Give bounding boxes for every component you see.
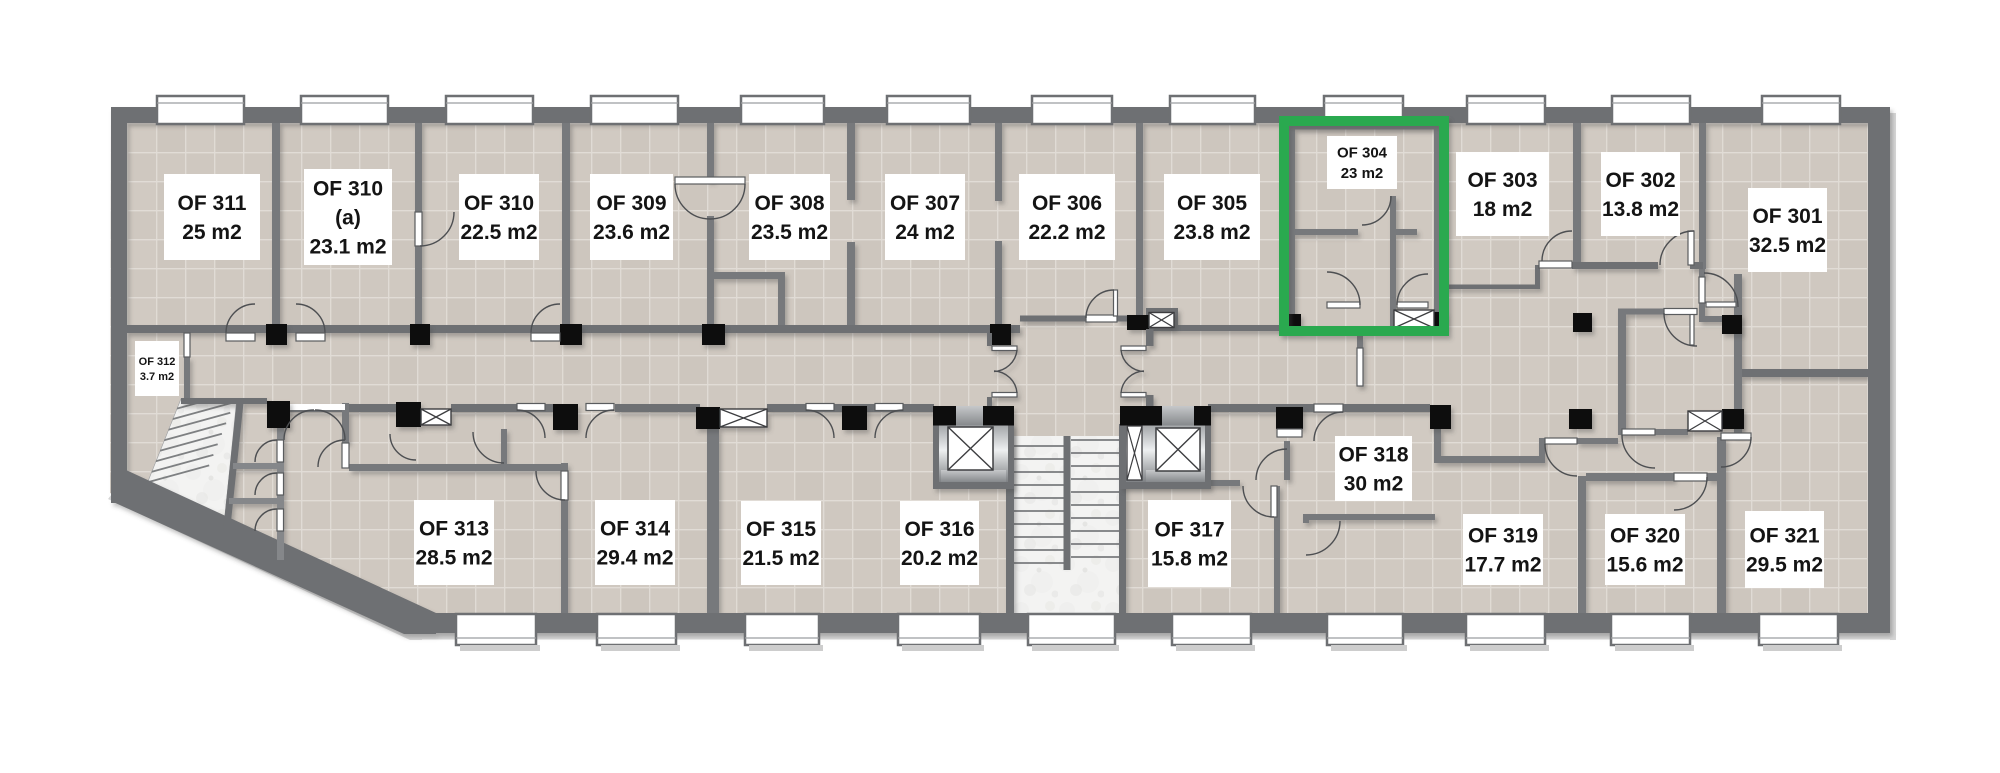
svg-text:22.2 m2: 22.2 m2 [1028,221,1105,244]
svg-text:OF 303: OF 303 [1467,169,1537,192]
svg-text:18 m2: 18 m2 [1473,198,1533,221]
svg-text:21.5 m2: 21.5 m2 [742,547,819,570]
svg-text:OF 314: OF 314 [600,517,670,540]
svg-text:OF 305: OF 305 [1177,192,1247,215]
svg-text:23.8 m2: 23.8 m2 [1173,221,1250,244]
svg-text:3.7 m2: 3.7 m2 [140,371,174,383]
svg-text:OF 302: OF 302 [1605,169,1675,192]
svg-text:OF 308: OF 308 [754,192,824,215]
svg-text:OF 310: OF 310 [464,192,534,215]
svg-text:OF 306: OF 306 [1032,192,1102,215]
svg-text:23.1 m2: 23.1 m2 [309,235,386,258]
svg-text:OF 318: OF 318 [1338,443,1408,466]
svg-text:OF 307: OF 307 [890,192,960,215]
svg-text:OF 310: OF 310 [313,177,383,200]
svg-text:29.5 m2: 29.5 m2 [1746,553,1823,576]
svg-text:22.5 m2: 22.5 m2 [460,221,537,244]
svg-text:OF 312: OF 312 [139,356,176,368]
svg-text:15.6 m2: 15.6 m2 [1606,553,1683,576]
svg-text:15.8 m2: 15.8 m2 [1151,547,1228,570]
svg-text:23 m2: 23 m2 [1341,165,1384,182]
svg-text:OF 315: OF 315 [746,518,816,541]
svg-text:OF 320: OF 320 [1610,524,1680,547]
svg-text:OF 321: OF 321 [1749,524,1819,547]
svg-text:23.5 m2: 23.5 m2 [751,221,828,244]
svg-text:13.8 m2: 13.8 m2 [1602,198,1679,221]
svg-text:17.7 m2: 17.7 m2 [1464,553,1541,576]
svg-text:30 m2: 30 m2 [1344,472,1404,495]
svg-text:OF 317: OF 317 [1154,518,1224,541]
svg-text:29.4 m2: 29.4 m2 [596,546,673,569]
svg-text:OF 311: OF 311 [178,192,247,215]
svg-text:23.6 m2: 23.6 m2 [593,221,670,244]
svg-text:OF 316: OF 316 [904,518,974,541]
svg-text:OF 313: OF 313 [419,517,489,540]
svg-text:25 m2: 25 m2 [182,221,242,244]
svg-text:OF 301: OF 301 [1752,205,1822,228]
svg-text:24 m2: 24 m2 [895,221,955,244]
svg-text:OF 319: OF 319 [1468,524,1538,547]
svg-text:32.5 m2: 32.5 m2 [1749,234,1826,257]
svg-text:OF 304: OF 304 [1337,144,1388,161]
svg-text:28.5 m2: 28.5 m2 [415,546,492,569]
svg-text:(a): (a) [335,206,361,229]
svg-text:OF 309: OF 309 [596,192,666,215]
svg-text:20.2 m2: 20.2 m2 [901,547,978,570]
